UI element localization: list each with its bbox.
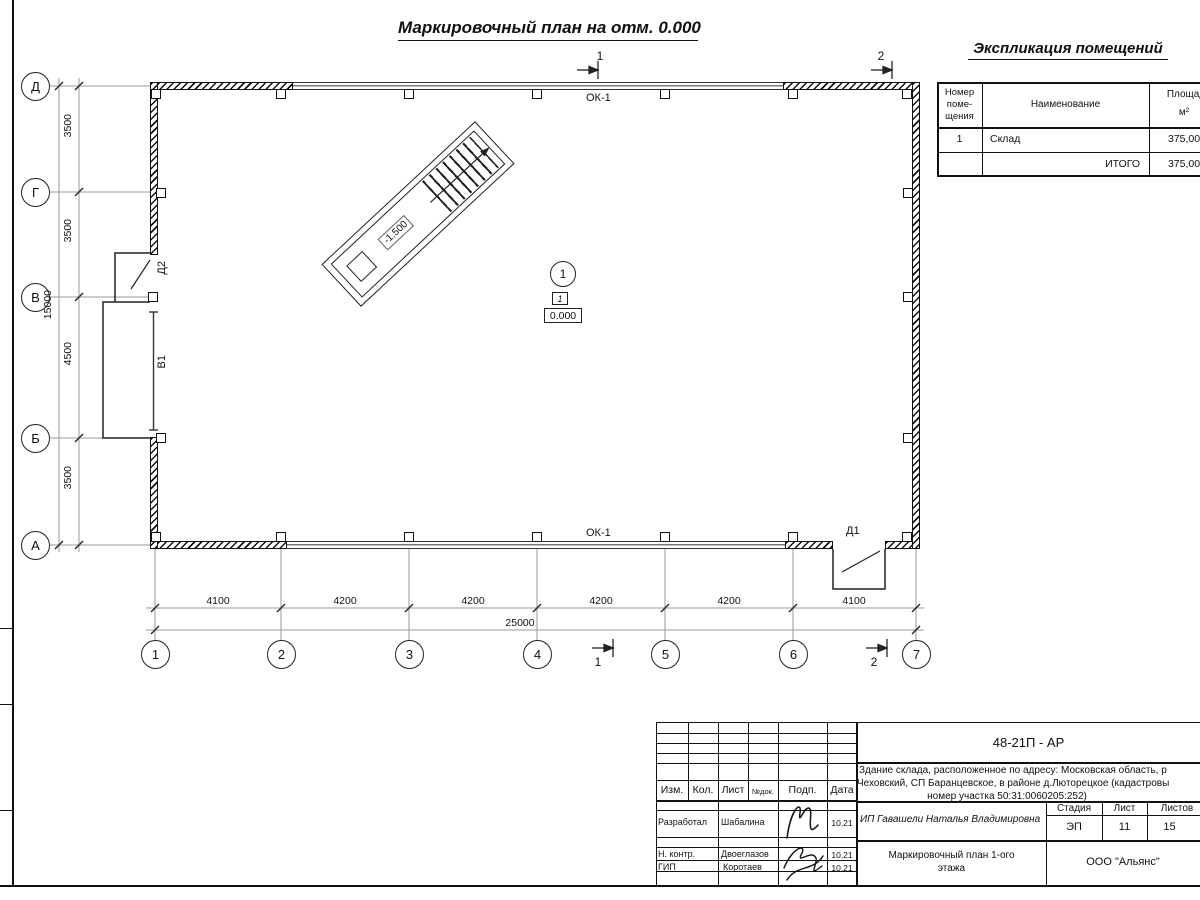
stamp-line	[656, 800, 857, 802]
stamp-header-ndok: №док.	[748, 787, 778, 796]
column	[903, 188, 913, 198]
drawing-sheet: { "sheet": { "plan_title": "Маркировочны…	[0, 0, 1200, 900]
stamp-client: ИП Гавашели Наталья Владимировна	[860, 814, 1040, 825]
stamp-header-kol: Кол.	[688, 784, 718, 796]
door-d2-leaf	[131, 260, 150, 289]
column	[404, 89, 414, 99]
dim-5-6: 4200	[704, 595, 754, 607]
stamp-line	[1046, 815, 1200, 816]
stamp-stage-header: Стадия	[1046, 803, 1102, 814]
wall-top-left	[150, 82, 293, 90]
axis-bubble-3: 3	[395, 640, 424, 669]
gate-v1-opening	[149, 312, 158, 430]
stamp-line	[656, 733, 857, 734]
section-1-top-label: 1	[590, 49, 610, 63]
column	[156, 433, 166, 443]
window-band-bottom	[287, 541, 785, 549]
axis-bubble-b: Б	[21, 424, 50, 453]
stamp-role-2: Н. контр.	[658, 849, 695, 859]
dim-bottom-total: 25000	[492, 617, 548, 629]
stamp-company: ООО "Альянс"	[1046, 856, 1200, 868]
column	[903, 292, 913, 302]
column	[660, 532, 670, 542]
dim-g-v: 3500	[62, 219, 74, 242]
stamp-header-data: Дата	[827, 784, 857, 796]
column	[532, 89, 542, 99]
column	[903, 433, 913, 443]
stamp-line	[656, 810, 857, 811]
door-d2-vestibule	[103, 253, 150, 438]
explication-row-name: Склад	[990, 133, 1020, 145]
wall-right	[912, 82, 920, 549]
explication-col-line	[1149, 82, 1150, 177]
stamp-sheets-value: 15	[1147, 821, 1192, 833]
explication-col-name: Наименование	[982, 99, 1149, 110]
stamp-date-3: 10.21	[827, 863, 857, 873]
stamp-header-podp: Подп.	[778, 784, 827, 796]
stamp-name-1: Шабалина	[721, 817, 764, 827]
stamp-description-line2: Чеховский, СП Баранцевское, в районе д.Л…	[857, 778, 1169, 789]
column	[276, 89, 286, 99]
dim-6-7: 4100	[829, 595, 879, 607]
column	[404, 532, 414, 542]
dim-b-a: 3500	[62, 466, 74, 489]
explication-row-number: 1	[937, 133, 982, 145]
stamp-name-3: Коротаев	[723, 862, 762, 872]
elevation-marker: 0.000	[544, 308, 582, 323]
section-2-top-label: 2	[871, 49, 891, 63]
dim-d-g: 3500	[62, 114, 74, 137]
column	[660, 89, 670, 99]
column	[902, 532, 912, 542]
dim-4-5: 4200	[576, 595, 626, 607]
stamp-line	[656, 780, 857, 781]
stamp-line	[718, 722, 719, 886]
axis-bubble-2: 2	[267, 640, 296, 669]
stamp-sheet-value: 11	[1102, 821, 1147, 833]
stamp-line	[656, 837, 857, 838]
wall-bottom-left	[150, 541, 287, 549]
explication-total-label: ИТОГО	[982, 158, 1140, 170]
stamp-stage-value: ЭП	[1046, 821, 1102, 833]
explication-header-line	[937, 127, 1200, 129]
door-d2-label: Д2	[156, 261, 168, 275]
axis-bubble-4: 4	[523, 640, 552, 669]
column	[276, 532, 286, 542]
explication-row-line	[937, 152, 1200, 153]
dim-left-total: 15000	[42, 290, 54, 319]
section-mark-arrows	[577, 61, 892, 657]
dim-v-b: 4500	[62, 342, 74, 365]
door-d1-vestibule	[833, 549, 885, 589]
axis-bubble-d: Д	[21, 72, 50, 101]
column	[902, 89, 912, 99]
column	[151, 532, 161, 542]
explication-row-area: 375,00	[1152, 133, 1200, 145]
window-label-bottom: ОК-1	[586, 527, 611, 539]
axis-bubble-1: 1	[141, 640, 170, 669]
stamp-name-2: Двоеглазов	[721, 849, 769, 859]
stamp-header-list: Лист	[718, 784, 748, 796]
window-label-top: ОК-1	[586, 92, 611, 104]
stamp-line	[656, 847, 857, 848]
stamp-role-3: ГИП	[658, 862, 676, 872]
column	[788, 89, 798, 99]
stamp-role-1: Разработал	[658, 817, 707, 827]
stamp-date-1: 10.21	[827, 818, 857, 828]
column	[148, 292, 158, 302]
axis-bubble-a: А	[21, 531, 50, 560]
stamp-description-line3: номер участка 50:31:0060205:252)	[857, 791, 1157, 802]
dim-1-2: 4100	[193, 595, 243, 607]
room-number-marker: 1	[550, 261, 576, 287]
explication-col-area-units: м²	[1152, 107, 1200, 118]
stamp-line	[827, 722, 828, 886]
column	[532, 532, 542, 542]
axis-bubble-g: Г	[21, 178, 50, 207]
stamp-sheet-title-line1: Маркировочный план 1-ого	[857, 850, 1046, 861]
floor-type-marker: 1	[552, 292, 568, 305]
wall-bottom-mid	[785, 541, 833, 549]
stamp-line	[656, 743, 857, 744]
stamp-sheet-header: Лист	[1102, 803, 1147, 814]
door-d1-leaf	[842, 551, 880, 572]
stamp-sheet-title-line2: этажа	[857, 863, 1046, 874]
gate-v1-label: В1	[156, 355, 168, 368]
stamp-line	[656, 753, 857, 754]
explication-col-area: Площадь,	[1152, 89, 1200, 100]
column	[788, 532, 798, 542]
axis-bubble-6: 6	[779, 640, 808, 669]
axis-bubble-7: 7	[902, 640, 931, 669]
wall-top-right	[783, 82, 920, 90]
section-1-bottom-label: 1	[588, 655, 608, 669]
stamp-line	[857, 840, 1200, 842]
stamp-line	[656, 860, 857, 861]
axis-bubble-5: 5	[651, 640, 680, 669]
explication-col-number: Номер поме- щения	[937, 87, 982, 123]
stamp-header-izm: Изм.	[656, 784, 688, 796]
section-2-bottom-label: 2	[864, 655, 884, 669]
door-d1-label: Д1	[846, 525, 860, 537]
column	[156, 188, 166, 198]
wall-left-upper	[150, 82, 158, 255]
signature-strokes	[779, 798, 826, 885]
stamp-doc-number: 48-21П - АР	[857, 735, 1200, 750]
stamp-description-line1: Здание склада, расположенное по адресу: …	[859, 765, 1167, 776]
explication-total-value: 375,00	[1152, 158, 1200, 170]
dim-3-4: 4200	[448, 595, 498, 607]
stamp-sheets-header: Листов	[1147, 803, 1200, 814]
dim-2-3: 4200	[320, 595, 370, 607]
stamp-line	[656, 763, 857, 764]
column	[151, 89, 161, 99]
stamp-line	[857, 762, 1200, 764]
stamp-date-2: 10.21	[827, 850, 857, 860]
